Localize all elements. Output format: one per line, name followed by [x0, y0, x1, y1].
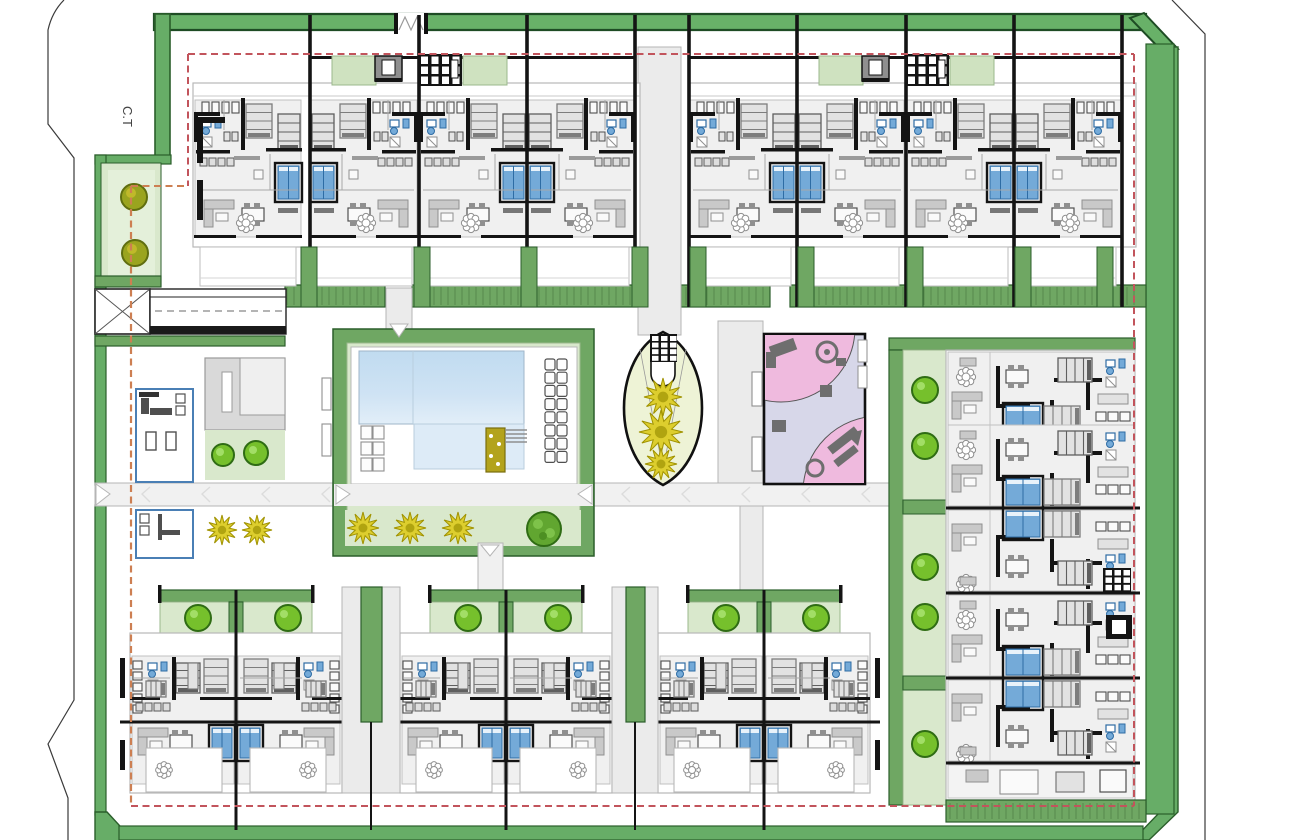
svg-text:C.T: C.T [120, 106, 135, 127]
